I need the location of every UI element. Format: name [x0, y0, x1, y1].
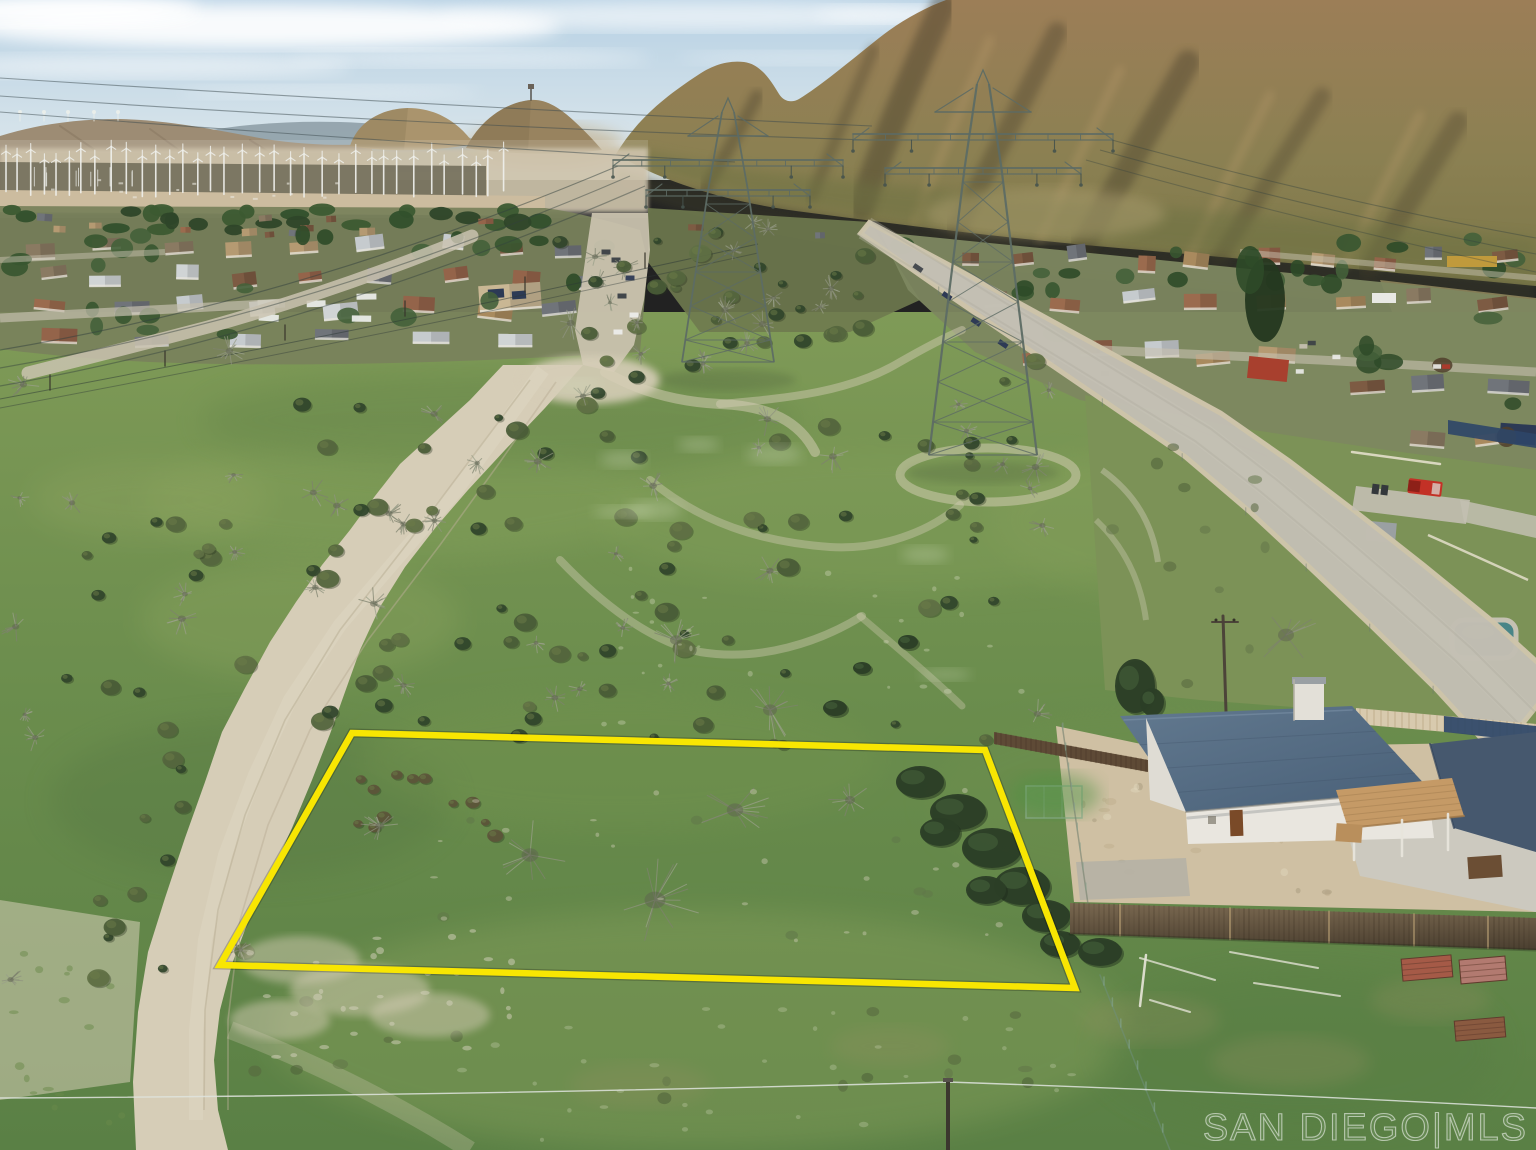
watermark: SAN DIEGO|MLS [1203, 1107, 1528, 1149]
aerial-photo: SAN DIEGO|MLS [0, 0, 1536, 1150]
watermark-text: SAN DIEGO|MLS [1203, 1107, 1528, 1149]
scene-canvas: SAN DIEGO|MLS [0, 0, 1536, 1150]
